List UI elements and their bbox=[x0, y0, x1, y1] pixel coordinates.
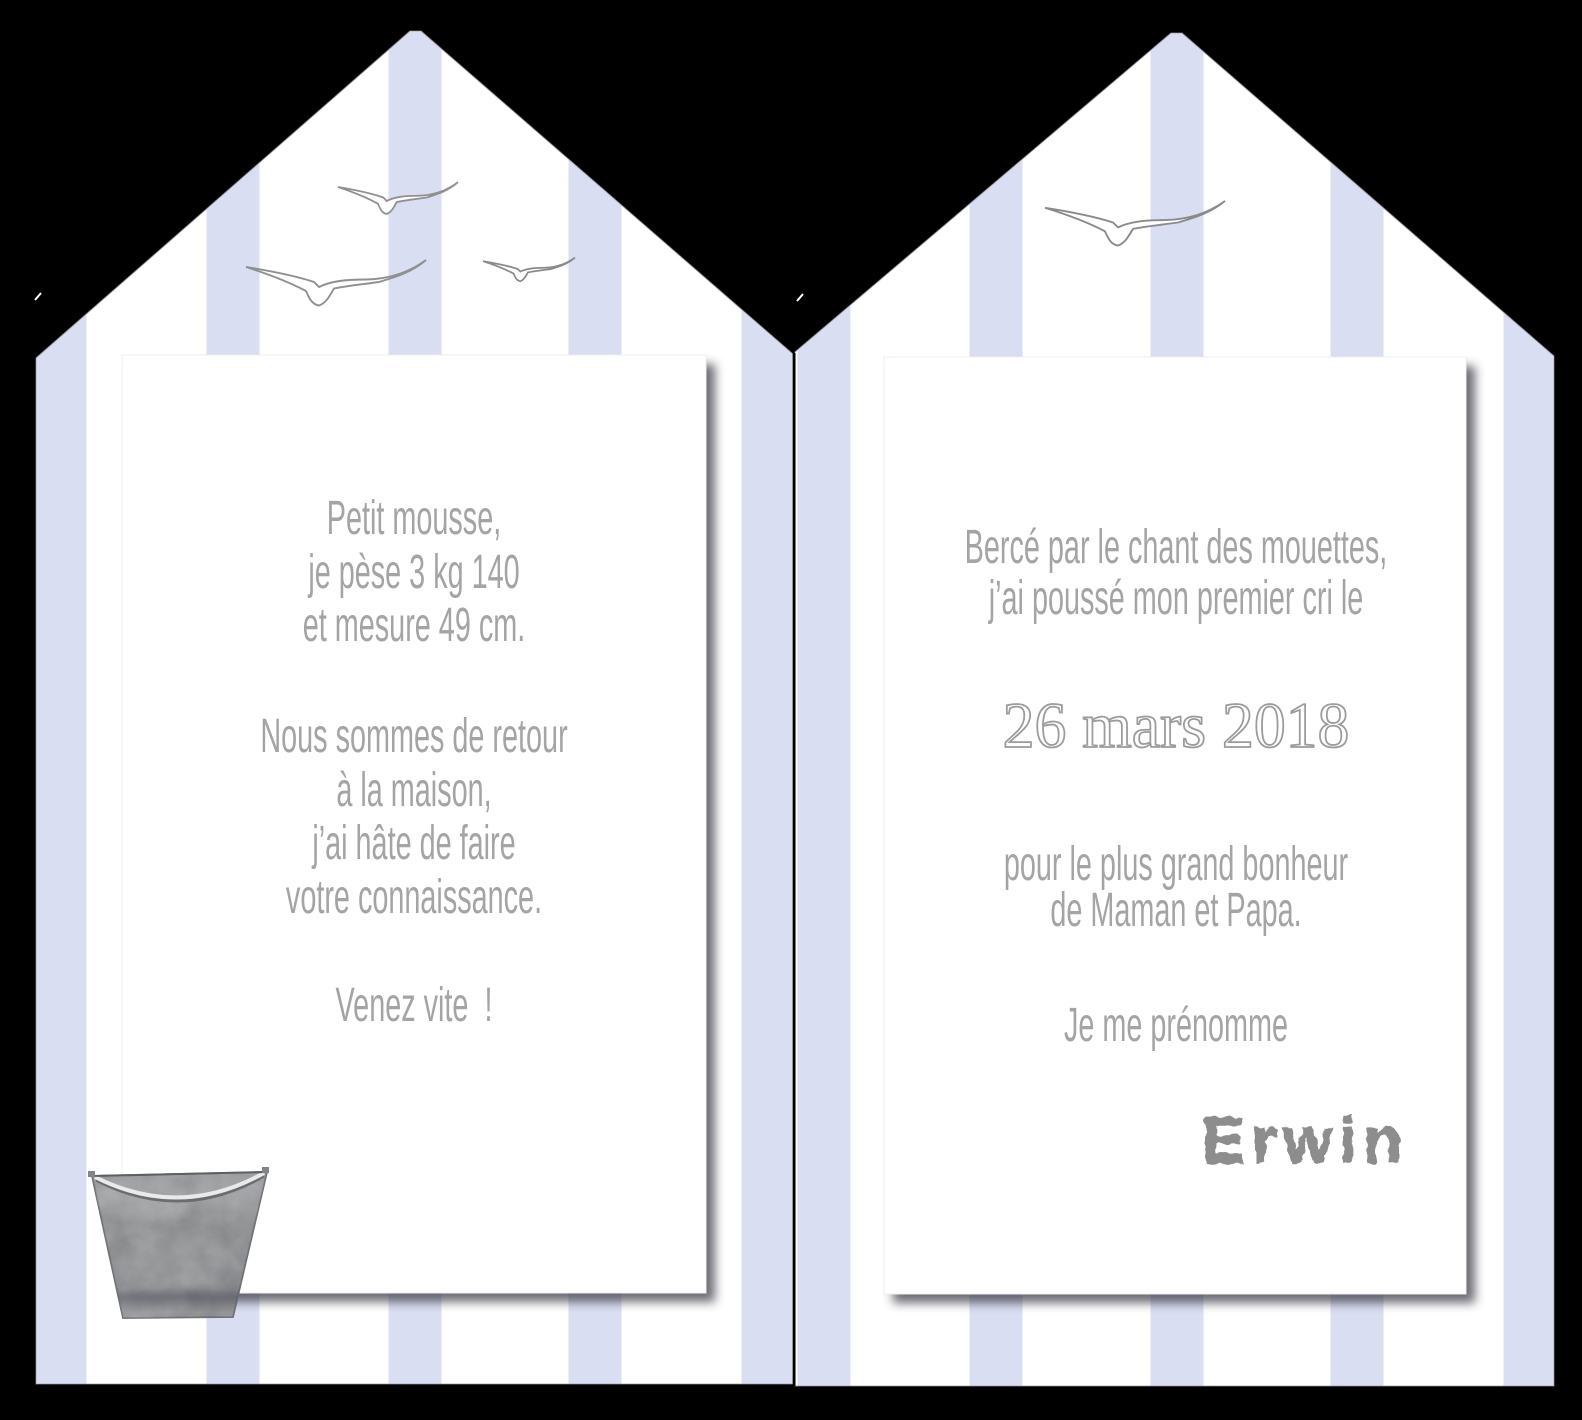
svg-text:Erwin: Erwin bbox=[1202, 1104, 1409, 1176]
